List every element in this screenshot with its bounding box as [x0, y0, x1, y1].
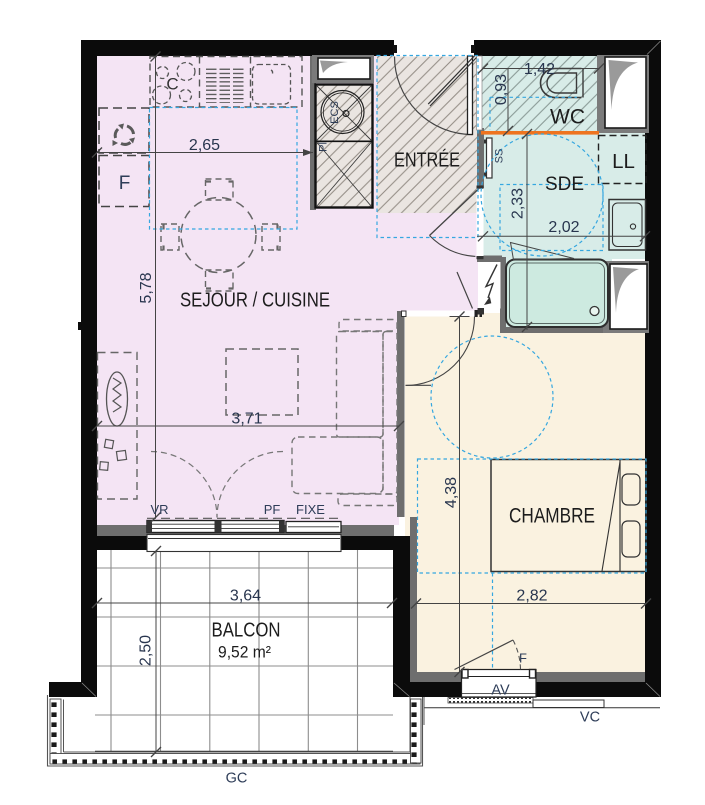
svg-text:SDE: SDE	[545, 174, 584, 195]
svg-text:C: C	[166, 75, 178, 94]
svg-text:LL: LL	[612, 150, 635, 173]
svg-text:WC: WC	[550, 106, 585, 129]
svg-text:VR: VR	[150, 502, 168, 517]
svg-text:AV: AV	[491, 683, 510, 699]
svg-text:3,71: 3,71	[231, 411, 262, 428]
svg-text:9,52 m²: 9,52 m²	[218, 644, 271, 662]
svg-text:ECS: ECS	[329, 101, 341, 124]
svg-text:2,33: 2,33	[510, 188, 527, 219]
svg-text:Pl: Pl	[318, 142, 330, 152]
svg-text:FIXE: FIXE	[296, 502, 325, 517]
svg-text:4,38: 4,38	[443, 477, 460, 508]
svg-text:ENTRÉE: ENTRÉE	[394, 149, 460, 172]
svg-text:SEJOUR / CUISINE: SEJOUR / CUISINE	[180, 289, 330, 312]
svg-text:2,82: 2,82	[516, 588, 547, 605]
svg-text:3,64: 3,64	[230, 588, 261, 605]
svg-text:1,42: 1,42	[524, 61, 555, 78]
svg-text:BALCON: BALCON	[212, 619, 281, 642]
svg-text:2,65: 2,65	[189, 137, 220, 154]
svg-text:5,78: 5,78	[138, 272, 155, 303]
svg-text:SS: SS	[494, 149, 506, 164]
svg-text:0,93: 0,93	[493, 74, 510, 105]
svg-text:F: F	[519, 651, 527, 666]
svg-text:CHAMBRE: CHAMBRE	[509, 505, 595, 528]
svg-text:PF: PF	[264, 502, 281, 517]
svg-text:2,50: 2,50	[138, 635, 155, 666]
svg-text:VC: VC	[580, 710, 600, 726]
svg-text:2,02: 2,02	[548, 219, 579, 236]
svg-text:F: F	[119, 173, 131, 194]
svg-text:GC: GC	[226, 771, 248, 787]
